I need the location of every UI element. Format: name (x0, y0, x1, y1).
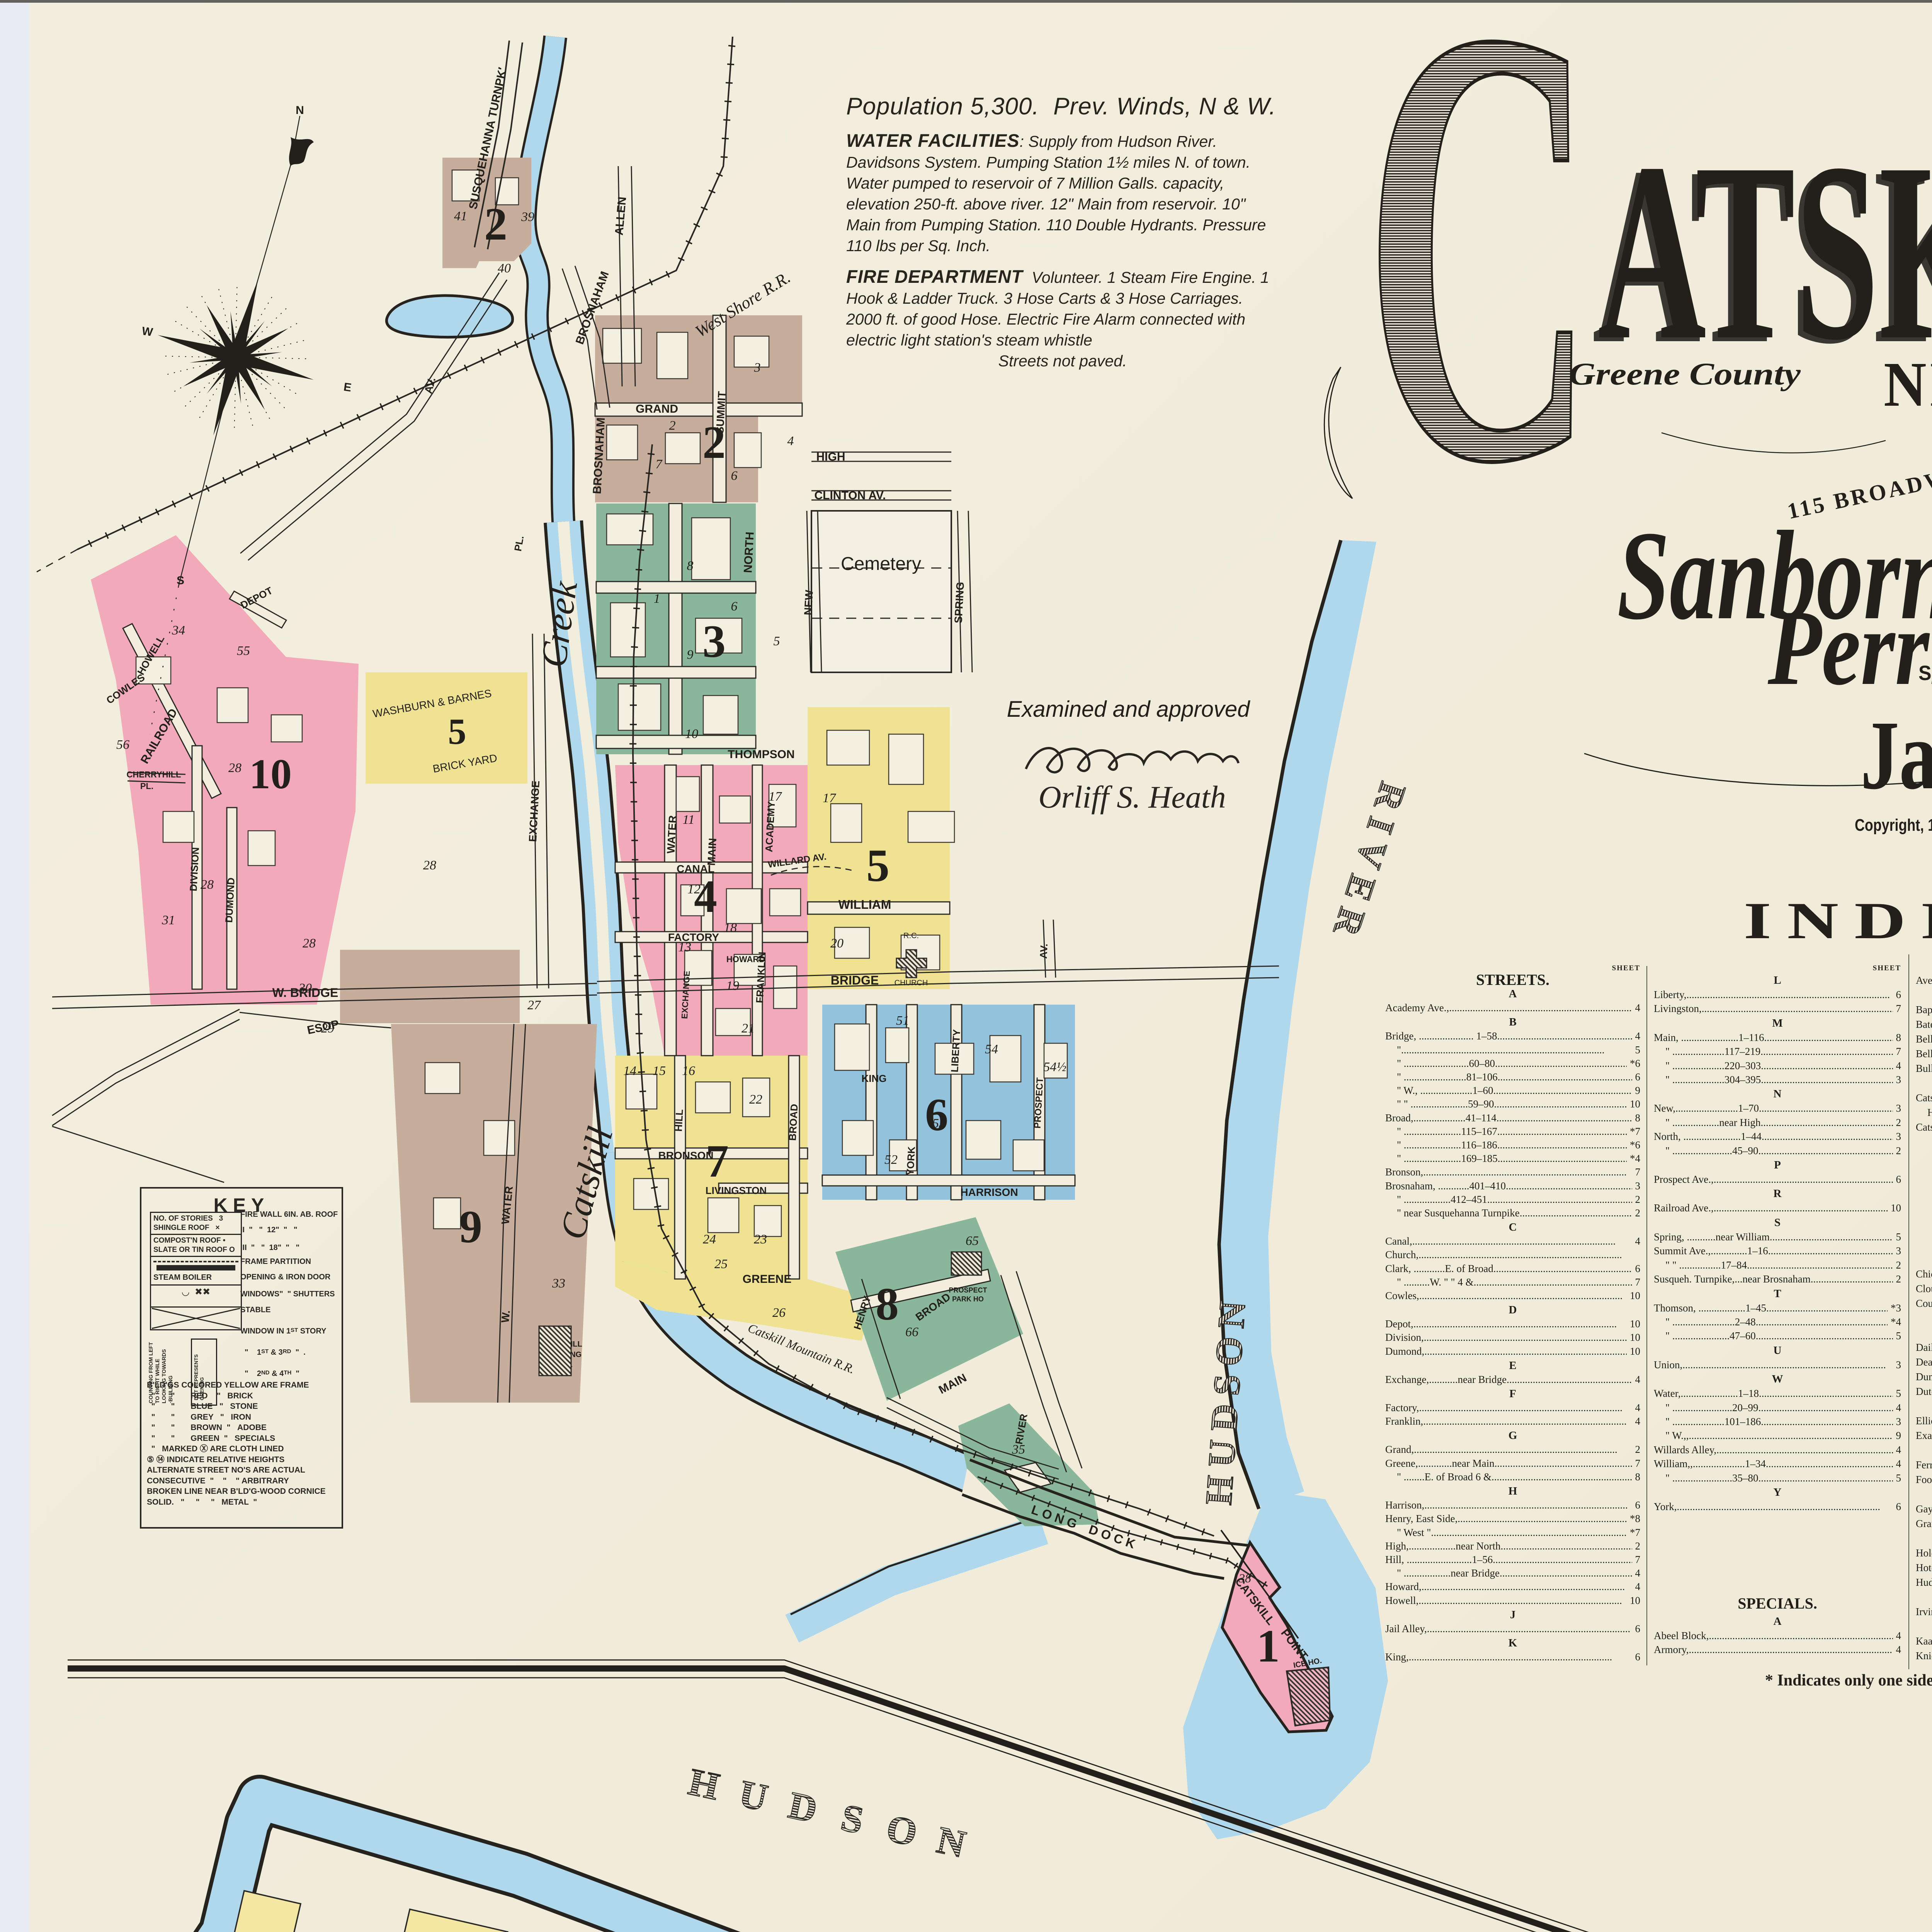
svg-text:NORTH: NORTH (742, 531, 757, 573)
svg-text:18: 18 (724, 921, 737, 935)
svg-text:PARK HO: PARK HO (952, 1295, 984, 1303)
svg-text:34: 34 (172, 623, 185, 638)
svg-text:5: 5 (866, 840, 889, 891)
svg-text:Jany, 1895: Jany, 1895 (1861, 701, 1932, 810)
svg-text:W: W (141, 325, 154, 339)
svg-text:BRONSON: BRONSON (658, 1150, 713, 1162)
svg-text:AV.: AV. (1037, 943, 1050, 959)
svg-text:56: 56 (116, 738, 129, 752)
svg-text:CLINTON AV.: CLINTON AV. (814, 489, 886, 502)
svg-text:PL.: PL. (512, 535, 526, 552)
svg-text:15: 15 (653, 1064, 666, 1078)
svg-text:S: S (177, 574, 184, 587)
svg-text:21: 21 (742, 1021, 755, 1036)
svg-text:39: 39 (521, 210, 534, 224)
svg-text:2: 2 (669, 418, 676, 433)
svg-text:HILL: HILL (673, 1109, 685, 1132)
svg-text:8: 8 (687, 559, 694, 573)
svg-text:10: 10 (249, 750, 292, 798)
svg-text:N: N (933, 1818, 969, 1866)
svg-text:Cemetery: Cemetery (841, 554, 921, 574)
svg-text:KING: KING (862, 1073, 887, 1084)
svg-text:28: 28 (423, 858, 436, 872)
svg-text:WATER: WATER (665, 815, 679, 854)
svg-text:9: 9 (687, 648, 694, 662)
svg-text:23: 23 (754, 1232, 767, 1247)
svg-text:Copyright, 1895, by the Sanbor: Copyright, 1895, by the Sanborn-Perris M… (1855, 816, 1932, 835)
svg-text:1: 1 (1257, 1620, 1280, 1672)
svg-text:HIGH: HIGH (816, 451, 845, 463)
svg-text:16: 16 (682, 1064, 695, 1078)
svg-text:51: 51 (896, 1014, 909, 1028)
svg-text:11: 11 (682, 813, 694, 827)
svg-text:CANAL: CANAL (677, 863, 714, 875)
svg-text:CHURCH: CHURCH (895, 979, 928, 987)
svg-text:26: 26 (772, 1306, 786, 1320)
svg-text:YORK: YORK (904, 1146, 917, 1176)
svg-text:12: 12 (687, 882, 701, 896)
svg-text:38: 38 (1238, 1571, 1251, 1585)
svg-text:2: 2 (484, 198, 507, 250)
svg-text:24: 24 (703, 1232, 716, 1247)
svg-text:6: 6 (731, 469, 738, 483)
svg-text:O: O (883, 1806, 921, 1855)
svg-text:U: U (735, 1772, 772, 1820)
svg-text:6: 6 (731, 599, 738, 614)
svg-text:5: 5 (774, 634, 780, 648)
svg-text:53: 53 (932, 1116, 946, 1131)
svg-text:MAIN: MAIN (705, 838, 719, 866)
svg-text:28: 28 (201, 878, 214, 892)
svg-text:54: 54 (985, 1042, 998, 1056)
svg-text:3: 3 (702, 616, 726, 667)
svg-text:RIVER: RIVER (1322, 777, 1414, 950)
svg-text:40: 40 (498, 261, 511, 276)
svg-text:66: 66 (905, 1325, 918, 1339)
svg-text:20: 20 (830, 936, 844, 951)
svg-text:W. BRIDGE: W. BRIDGE (272, 986, 338, 1000)
svg-text:* Indicates only one side of S: * Indicates only one side of Street show… (1765, 1672, 1932, 1689)
svg-text:14: 14 (623, 1064, 636, 1078)
svg-text:EXCHANGE: EXCHANGE (527, 780, 542, 842)
svg-text:4: 4 (787, 434, 794, 448)
svg-text:GRAND: GRAND (636, 403, 678, 415)
svg-text:AV.: AV. (422, 376, 438, 395)
svg-text:25: 25 (714, 1257, 728, 1271)
svg-text:Greene County: Greene County (1569, 356, 1801, 391)
svg-text:WILLIAM: WILLIAM (838, 898, 891, 912)
svg-text:GREENE: GREENE (743, 1273, 792, 1286)
svg-text:BROAD: BROAD (787, 1104, 800, 1141)
svg-text:ATSKILL: ATSKILL (1598, 110, 1932, 393)
svg-text:LIBERTY: LIBERTY (949, 1029, 963, 1073)
svg-text:6: 6 (925, 1089, 948, 1140)
svg-text:SCALE 50 FT TO AN INCH: SCALE 50 FT TO AN INCH (1918, 662, 1932, 685)
svg-text:41: 41 (454, 209, 467, 223)
svg-text:17: 17 (823, 791, 837, 805)
svg-text:Examined and approved: Examined and approved (1007, 697, 1251, 722)
svg-text:LIVINGSTON: LIVINGSTON (706, 1185, 767, 1196)
svg-text:C: C (1364, 0, 1596, 592)
svg-text:22: 22 (749, 1092, 762, 1107)
svg-text:N: N (296, 104, 304, 117)
svg-text:MAIN: MAIN (937, 1371, 969, 1396)
svg-text:NEW: NEW (802, 590, 815, 616)
svg-text:E: E (343, 381, 352, 394)
svg-text:FACTORY: FACTORY (668, 931, 719, 943)
svg-text:H: H (685, 1760, 723, 1808)
svg-text:S: S (837, 1796, 867, 1842)
svg-text:INDEX.: INDEX. (1744, 892, 1932, 950)
svg-text:19: 19 (726, 979, 739, 993)
svg-text:D: D (785, 1783, 821, 1831)
svg-text:NEW YORK: NEW YORK (1884, 349, 1932, 420)
svg-text:10: 10 (685, 727, 698, 741)
svg-text:28: 28 (228, 761, 241, 775)
svg-text:Perris: Perris (1766, 587, 1932, 707)
svg-text:3: 3 (754, 361, 761, 375)
svg-text:R.C.: R.C. (903, 932, 919, 940)
svg-text:W.: W. (499, 1310, 512, 1323)
svg-text:33: 33 (552, 1276, 565, 1291)
svg-text:1: 1 (654, 592, 660, 606)
svg-text:8: 8 (876, 1278, 899, 1330)
svg-text:HARRISON: HARRISON (960, 1186, 1018, 1198)
svg-text:PL.: PL. (140, 781, 153, 791)
svg-text:DIVISION: DIVISION (187, 847, 201, 892)
svg-text:Orliff S. Heath: Orliff S. Heath (1038, 779, 1226, 815)
svg-text:31: 31 (162, 913, 175, 927)
svg-text:CHERRYHILL: CHERRYHILL (127, 770, 181, 779)
svg-text:27: 27 (527, 998, 541, 1012)
svg-text:DUMOND: DUMOND (223, 877, 237, 923)
svg-text:ALLEN: ALLEN (613, 196, 629, 236)
svg-text:54½: 54½ (1043, 1060, 1066, 1074)
svg-text:5: 5 (448, 711, 466, 752)
svg-text:65: 65 (966, 1234, 979, 1248)
svg-text:52: 52 (884, 1153, 898, 1167)
svg-text:THOMPSON: THOMPSON (728, 748, 794, 761)
svg-text:7: 7 (656, 457, 663, 471)
svg-text:SUMMIT: SUMMIT (714, 391, 728, 434)
svg-text:SPRING: SPRING (952, 582, 966, 624)
svg-text:9: 9 (459, 1201, 482, 1252)
svg-text:55: 55 (237, 644, 250, 658)
svg-text:28: 28 (303, 936, 316, 951)
svg-text:BRIDGE: BRIDGE (831, 973, 879, 987)
svg-text:PROSPECT: PROSPECT (949, 1286, 987, 1294)
